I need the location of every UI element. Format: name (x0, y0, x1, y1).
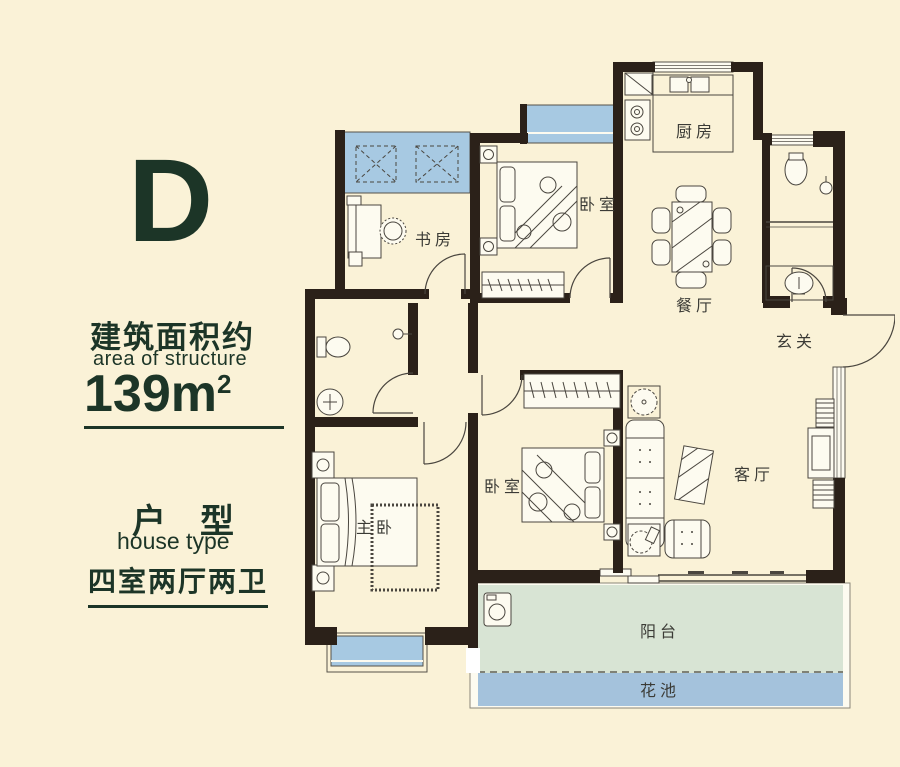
unit-type-letter: D (128, 142, 213, 260)
room-label-flower-bed: 花池 (640, 682, 680, 700)
bedroom-top-door (570, 258, 610, 298)
room-label-balcony: 阳台 (640, 623, 680, 641)
tv-cabinet (808, 399, 834, 508)
room-label-dining: 餐厅 (676, 297, 716, 315)
entrance-door (843, 315, 895, 367)
room-label-study: 书房 (415, 231, 455, 249)
bathroom-mid-door (373, 373, 413, 413)
foyer-side-window (833, 367, 845, 478)
living-room-furniture (626, 386, 834, 558)
room-label-master-bedroom: 主卧 (356, 519, 396, 537)
bedroom-mid-door (482, 375, 522, 415)
bathroom-top-fixtures (766, 153, 833, 300)
area-value-number: 139m (84, 365, 217, 423)
study-door (425, 254, 465, 294)
bathroom-top-window (770, 135, 815, 145)
bedroom-top-window (524, 105, 614, 143)
room-label-foyer: 玄关 (776, 333, 816, 351)
layout-summary: 四室两厅两卫 (88, 560, 268, 608)
study-desk (347, 196, 406, 266)
room-label-bedroom-top: 卧室 (579, 196, 619, 214)
dining-table-set (652, 186, 731, 288)
floorplan-page: { "colors": { "background": "#FAF2D7", "… (0, 0, 900, 767)
shower-icon (820, 182, 832, 194)
kitchen-window (653, 62, 733, 72)
coffee-table (675, 446, 714, 504)
armchair (665, 520, 710, 558)
house-type-title-en: house type (117, 528, 230, 555)
balcony-left-opening (466, 648, 480, 673)
living-bottom-window (658, 571, 806, 581)
washing-machine-icon (484, 593, 511, 626)
balcony-sliding-door (600, 569, 659, 583)
room-label-living: 客厅 (734, 466, 774, 484)
kitchen-sink-icon (670, 77, 688, 92)
bedroom-mid-furniture (522, 374, 620, 540)
area-value-sup: 2 (217, 369, 231, 399)
bedroom-top-furniture (480, 146, 577, 298)
room-label-kitchen: 厨房 (676, 123, 716, 141)
toilet-mid-icon (317, 337, 350, 357)
area-value: 139m2 (84, 368, 284, 429)
master-bedroom-door (424, 422, 466, 464)
master-bay-window (327, 633, 427, 672)
sink-mid-icon (317, 389, 343, 415)
floor-plan: 书房 卧室 厨房 餐厅 玄关 主卧 卧室 客厅 阳台 花池 (275, 25, 895, 725)
room-label-bedroom-mid: 卧室 (484, 478, 524, 496)
study-bay-window (337, 132, 470, 193)
